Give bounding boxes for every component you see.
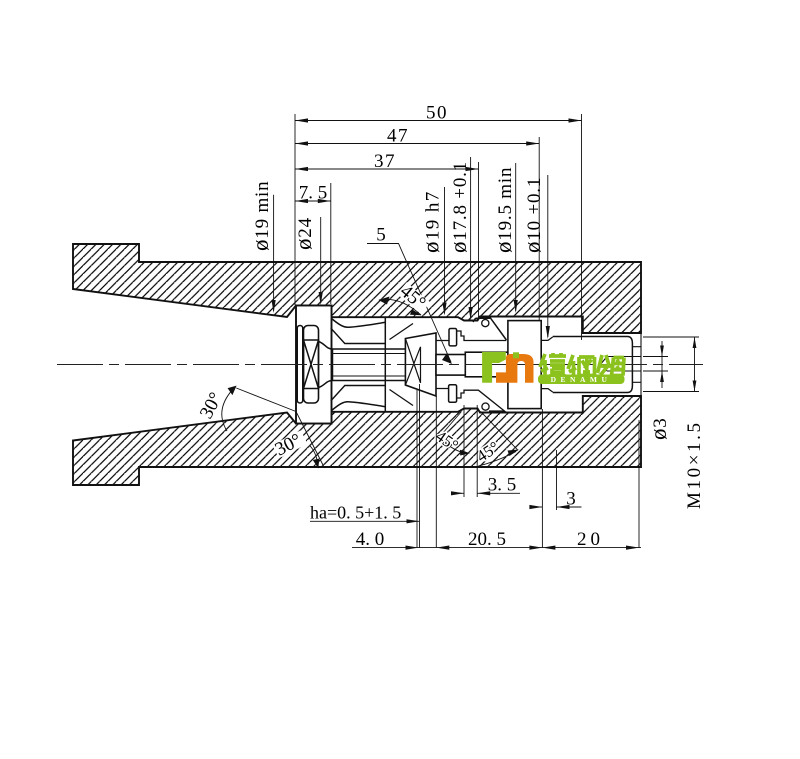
svg-text:20. 5: 20. 5 xyxy=(468,529,506,550)
svg-text:50: 50 xyxy=(426,103,448,124)
svg-text:4. 0: 4. 0 xyxy=(356,529,385,550)
svg-text:ø10 +0.1: ø10 +0.1 xyxy=(520,177,545,253)
svg-text:ø17.8 +0.1: ø17.8 +0.1 xyxy=(446,161,471,253)
svg-text:3: 3 xyxy=(566,489,576,510)
svg-text:ø19.5 min: ø19.5 min xyxy=(491,167,516,253)
svg-text:ha=0. 5+1. 5: ha=0. 5+1. 5 xyxy=(310,503,401,523)
svg-text:ø3: ø3 xyxy=(646,417,671,440)
svg-text:ø19 h7: ø19 h7 xyxy=(419,190,444,253)
svg-text:ø24: ø24 xyxy=(291,217,316,250)
svg-text:7. 5: 7. 5 xyxy=(299,183,328,204)
svg-text:5: 5 xyxy=(376,225,386,246)
svg-text:M10×1.5: M10×1.5 xyxy=(684,420,705,509)
svg-text:DENAMU: DENAMU xyxy=(551,375,612,384)
svg-text:37: 37 xyxy=(374,151,396,172)
svg-text:3. 5: 3. 5 xyxy=(488,475,517,496)
svg-text:ø19 min: ø19 min xyxy=(248,181,273,251)
svg-text:20: 20 xyxy=(577,529,604,550)
svg-text:47: 47 xyxy=(387,126,409,147)
